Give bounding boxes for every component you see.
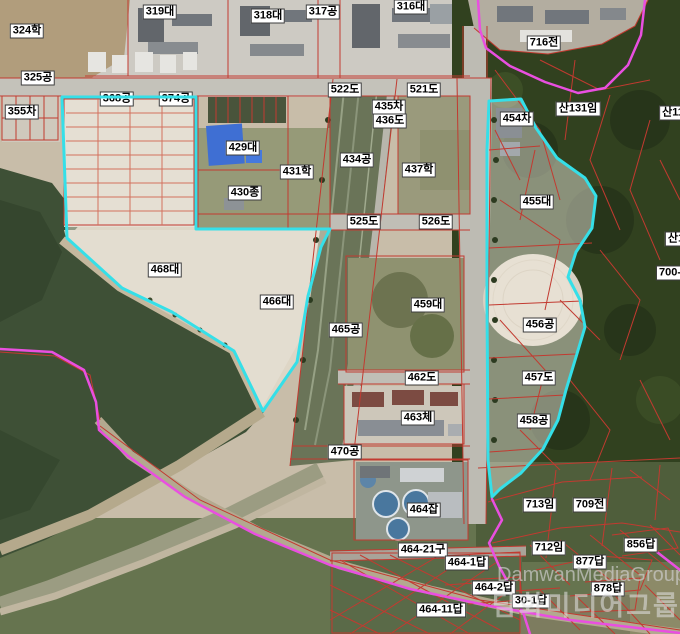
cadastral-lines	[0, 0, 680, 634]
parcel-label: 458공	[517, 414, 551, 429]
parcel-label: 30-1답	[512, 594, 550, 609]
parcel-label: 525도	[347, 215, 381, 230]
parcel-label: 319대	[143, 5, 177, 20]
terrain-water	[0, 168, 264, 558]
parcel-label: 431학	[280, 165, 314, 180]
map-terrain	[0, 0, 680, 634]
highlight-boundary-west	[62, 97, 330, 411]
parcel-label: 316대	[394, 0, 428, 15]
parcel-label: 459대	[411, 298, 445, 313]
terrain-base	[0, 0, 680, 634]
parcel-label: 716전	[527, 36, 561, 51]
magenta-boundary-coast	[0, 349, 680, 633]
parcel-label: 470공	[328, 445, 362, 460]
parcel-label: 709전	[573, 498, 607, 513]
shoreline-south	[0, 412, 262, 550]
watermark: DamwanMediaGroup 담화미디어그룹	[0, 0, 680, 634]
parcel-label: 437학	[402, 163, 436, 178]
terrain-forest	[452, 0, 680, 530]
parcel-label: 324학	[10, 24, 44, 39]
highlight-fill-east	[487, 99, 596, 497]
parcel-label: 374공	[159, 92, 193, 107]
parcel-label: 463체	[401, 411, 435, 426]
buildings	[88, 0, 648, 540]
parcel-label: 464-2답	[472, 581, 516, 596]
parcel-label: 464-11답	[416, 603, 466, 618]
parcel-label: 455대	[520, 195, 554, 210]
roads	[0, 26, 526, 561]
parcel-label: 454차	[500, 112, 534, 127]
parcel-label: 522도	[328, 83, 362, 98]
magenta-boundary-corner	[648, 545, 680, 570]
parcel-label: 464-21구	[398, 543, 448, 558]
parcel-label: 산131임	[556, 102, 601, 117]
shoreline	[62, 240, 262, 410]
tree-dots	[148, 117, 500, 443]
parcel-label: 465공	[329, 323, 363, 338]
terrain-urban	[0, 0, 680, 97]
parcel-label: 464-1답	[445, 556, 489, 571]
parcel-label: 457도	[522, 371, 556, 386]
parcel-surfaces	[2, 96, 583, 540]
magenta-boundary-north	[478, 0, 645, 93]
parcel-label: 700-	[656, 266, 680, 281]
parcel-label: 877답	[573, 555, 607, 570]
aerial-map-canvas[interactable]: 368공374공 324학319대318대317공316대716전325공522…	[0, 0, 680, 634]
boundary-overlay	[0, 0, 680, 634]
terrain-fields	[0, 462, 680, 634]
parcel-label: 산1	[665, 232, 680, 247]
parcel-label: 456공	[523, 318, 557, 333]
watermark-korean: 담화미디어그룹	[492, 584, 680, 623]
parcel-label: 318대	[251, 9, 285, 24]
parcel-label: 325공	[21, 71, 55, 86]
parcel-label: 521도	[407, 83, 441, 98]
parcel-label: 317공	[306, 5, 340, 20]
terrain-dirt	[0, 0, 130, 80]
parcel-label: 466대	[260, 295, 294, 310]
magenta-boundary-south	[489, 499, 530, 634]
parcel-label: 430종	[228, 186, 262, 201]
parcel-label: 712임	[532, 541, 566, 556]
parking-grid-lines	[66, 99, 194, 225]
parcel-label: 429대	[226, 141, 260, 156]
parcel-labels: 324학319대318대317공316대716전325공522도521도355차…	[0, 0, 680, 634]
parcel-label: 435차	[372, 100, 406, 115]
parcel-label: 878답	[591, 582, 625, 597]
parcel-label: 434공	[340, 153, 374, 168]
watermark-latin: DamwanMediaGroup	[497, 564, 667, 587]
highlight-boundary-east	[487, 99, 596, 497]
parcel-label: 464잡	[407, 503, 441, 518]
parcel-label: 355차	[5, 105, 39, 120]
parcel-labels-under: 368공374공	[0, 0, 680, 634]
parcel-label: 368공	[100, 92, 134, 107]
parcel-label: 468대	[148, 263, 182, 278]
parcel-label: 462도	[405, 371, 439, 386]
rail-corridor	[0, 79, 680, 633]
parcel-label: 산11	[659, 106, 680, 121]
highlight-fill-west	[62, 97, 330, 411]
parcel-label: 436도	[373, 114, 407, 129]
parcel-label: 526도	[419, 215, 453, 230]
parcel-label: 856답	[624, 538, 658, 553]
parcel-label: 713임	[523, 498, 557, 513]
